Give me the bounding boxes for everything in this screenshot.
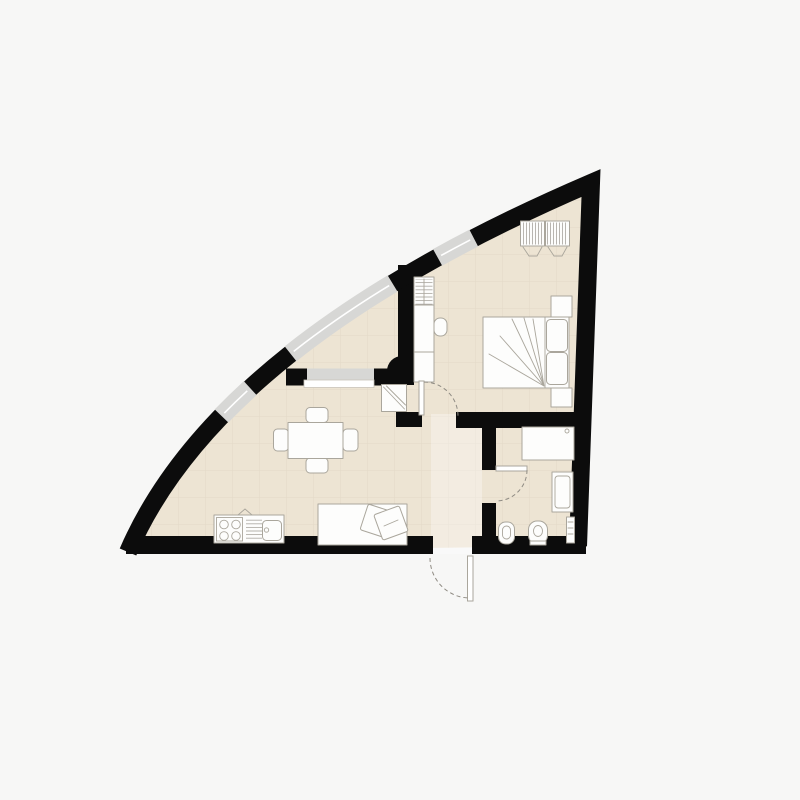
entry-corridor-floor bbox=[431, 414, 482, 554]
washer-shower-unit bbox=[522, 427, 574, 460]
page-background bbox=[0, 0, 800, 800]
chair-left bbox=[274, 429, 289, 451]
double-bed bbox=[483, 317, 569, 388]
sink bbox=[263, 521, 282, 541]
entrance-door bbox=[430, 556, 473, 601]
drainboard bbox=[246, 520, 262, 541]
chair-right bbox=[343, 429, 358, 451]
towel-radiator bbox=[567, 517, 575, 543]
wall-knob bbox=[434, 318, 447, 336]
chair-bottom bbox=[306, 458, 328, 473]
pillow-upper bbox=[547, 320, 568, 352]
nightstand-top bbox=[551, 296, 572, 317]
daybed bbox=[318, 504, 408, 545]
floor-plan-canvas bbox=[0, 0, 800, 800]
toilet bbox=[529, 521, 548, 545]
dining-table bbox=[288, 423, 343, 459]
bidet bbox=[499, 522, 515, 544]
washbasin bbox=[552, 472, 573, 512]
chair-top bbox=[306, 408, 328, 423]
window-sill bbox=[304, 380, 374, 388]
nightstand-bottom bbox=[551, 388, 572, 407]
tv-corner-unit bbox=[382, 385, 407, 412]
pillow-lower bbox=[547, 353, 568, 385]
bedroom-door-stub bbox=[396, 412, 422, 427]
